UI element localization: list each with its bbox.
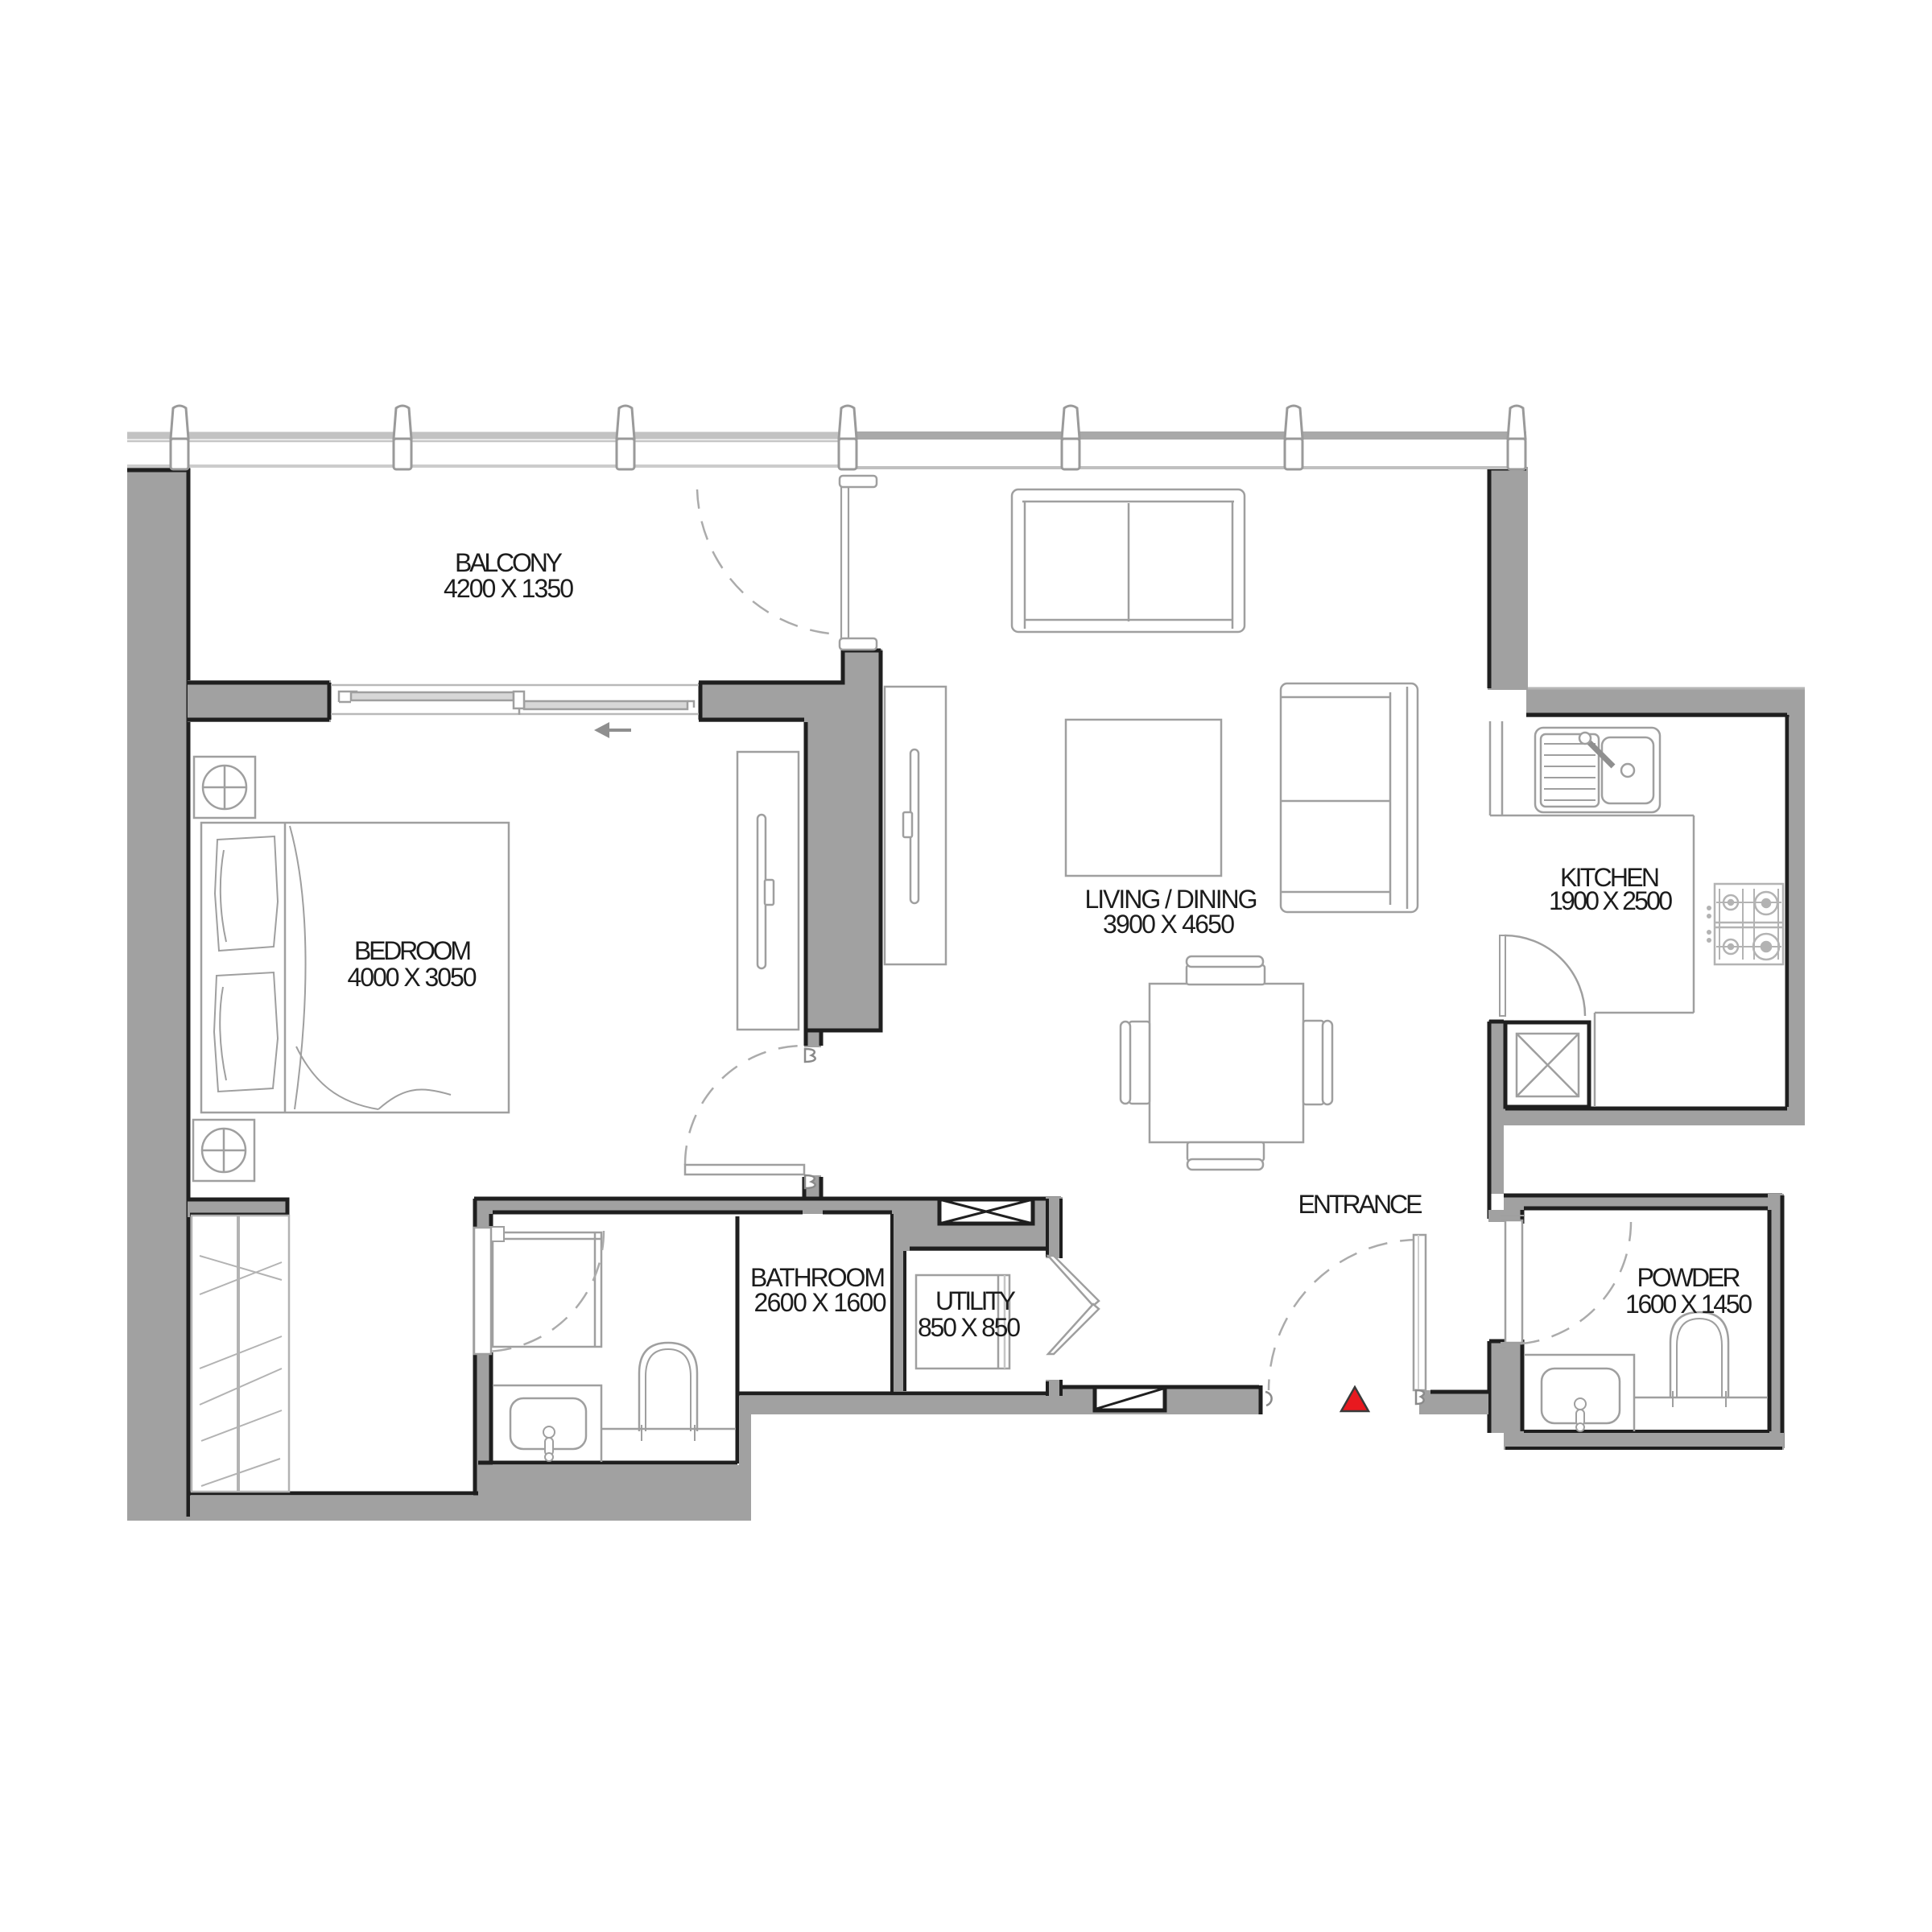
svg-text:POWDER: POWDER: [1637, 1263, 1741, 1292]
svg-text:850 X 850: 850 X 850: [918, 1313, 1021, 1342]
svg-text:1600 X 1450: 1600 X 1450: [1625, 1290, 1752, 1319]
svg-text:4000 X 3050: 4000 X 3050: [348, 963, 477, 992]
svg-text:4200 X 1350: 4200 X 1350: [444, 574, 574, 603]
svg-text:1900 X 2500: 1900 X 2500: [1549, 886, 1673, 915]
svg-text:BALCONY: BALCONY: [455, 548, 563, 577]
svg-text:UTILITY: UTILITY: [935, 1286, 1016, 1315]
svg-text:ENTRANCE: ENTRANCE: [1298, 1190, 1423, 1219]
svg-text:BEDROOM: BEDROOM: [354, 936, 472, 965]
svg-text:3900 X 4650: 3900 X 4650: [1103, 910, 1235, 939]
svg-text:2600 X 1600: 2600 X 1600: [754, 1288, 887, 1317]
